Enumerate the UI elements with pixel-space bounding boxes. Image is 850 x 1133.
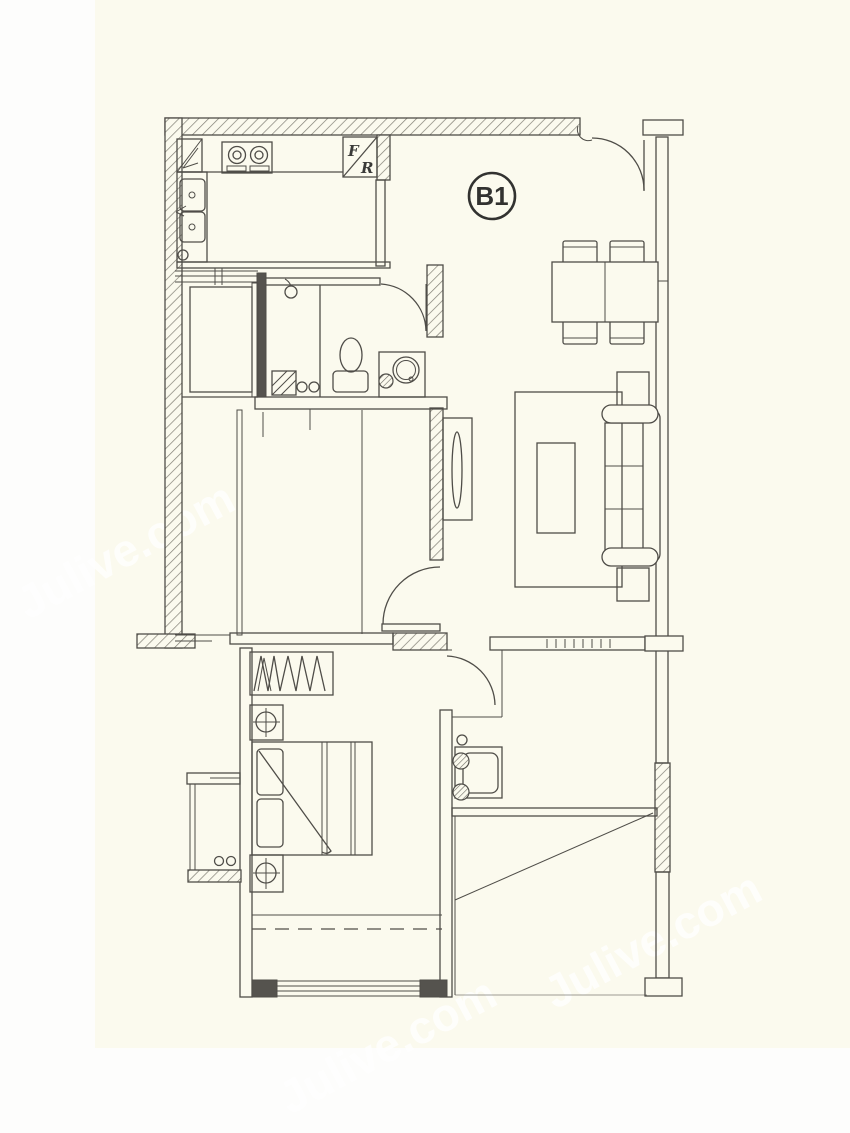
unit-label-text: B1 — [475, 181, 508, 211]
floor-plan-svg: Julive.com Julive.com Julive.com — [0, 0, 850, 1133]
sofa-armrest-bottom — [602, 548, 658, 566]
platform-bottom-hatched — [188, 870, 241, 882]
stool-2 — [453, 784, 469, 800]
soap-dish — [379, 374, 393, 388]
exterior-wall-top — [165, 118, 580, 135]
refrigerator-letter-r: R — [360, 159, 373, 177]
right-wall-hatched-section — [655, 763, 670, 872]
column-foot-bottom-right — [645, 978, 682, 996]
column-right-of-fridge — [377, 135, 390, 180]
stool-1 — [453, 753, 469, 769]
wall-hall-south-hatched — [393, 633, 447, 650]
column-bathroom-right — [427, 265, 443, 337]
sofa-armrest-top — [602, 405, 658, 423]
window-jamb-left — [252, 980, 277, 997]
wall-midbedroom-right — [430, 408, 443, 560]
bottom-margin — [95, 1048, 850, 1133]
floor-plan-page: Julive.com Julive.com Julive.com — [0, 0, 850, 1133]
column-cap-mid-right — [645, 636, 683, 651]
refrigerator-letter-f: F — [347, 142, 360, 160]
sofa-back — [643, 410, 660, 562]
column-cap-entry — [643, 120, 683, 135]
window-jamb-right — [420, 980, 447, 997]
